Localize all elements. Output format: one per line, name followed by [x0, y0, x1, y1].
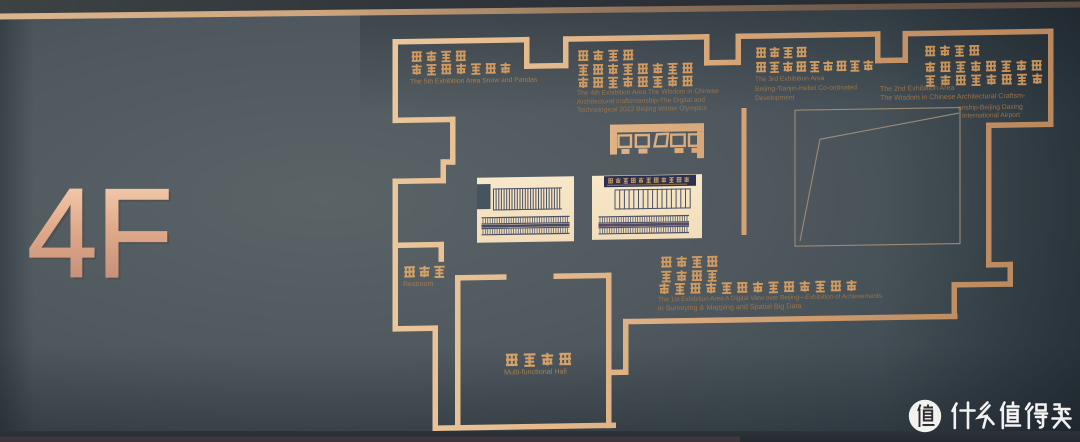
- svg-text:Restroom: Restroom: [403, 281, 434, 288]
- svg-text:anship-Beijing Daxing: anship-Beijing Daxing: [958, 104, 1023, 112]
- svg-text:International Airport: International Airport: [962, 112, 1020, 120]
- svg-text:The 3rd Exhibition Area: The 3rd Exhibition Area: [755, 75, 825, 83]
- svg-text:Development: Development: [755, 95, 795, 103]
- svg-text:Multi-functional Hall: Multi-functional Hall: [504, 367, 567, 377]
- svg-text:The 2nd Exhibition Area: The 2nd Exhibition Area: [880, 85, 954, 93]
- svg-text:4F: 4F: [27, 162, 171, 304]
